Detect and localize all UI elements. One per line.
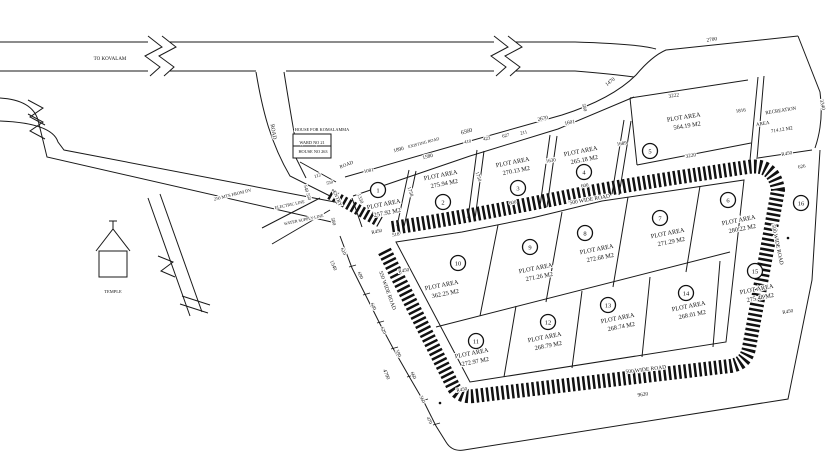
survey-dot: [439, 402, 442, 405]
plot-number: 11: [473, 338, 479, 345]
top-road-lower-edge: [0, 71, 634, 77]
annotation-label: 1540: [328, 260, 338, 272]
annotation-label: 3222: [668, 92, 680, 100]
annotation-label: RECREATION: [765, 107, 797, 117]
temple-finial: [109, 221, 117, 229]
annotation-label: 1689: [617, 141, 628, 148]
plot-area-label: PLOT AREA280.22 M2: [721, 214, 758, 236]
annotation-label: WARD NO 21: [299, 140, 324, 145]
site-plan-svg: TO KOVALAMROADHOUSE FOR KOMALAMMAWARD NO…: [0, 0, 830, 460]
plot-area-label: PLOT AREA362.25 M2: [424, 279, 461, 301]
plot-number: 9: [528, 244, 531, 251]
annotation-label: HOUSE NO 263: [298, 149, 327, 154]
annotation-label: 2670: [537, 115, 549, 123]
plot-area-label: PLOT AREA270.13 M2: [495, 156, 532, 178]
annotation-label: 3340: [818, 99, 826, 111]
plot-number: 15: [752, 268, 759, 275]
annotation-label: 1470: [604, 76, 616, 87]
plot-number: 12: [545, 319, 552, 326]
plot-area-label: PLOT AREA268.74 M2: [600, 312, 637, 334]
plot-number: 2: [441, 199, 444, 206]
plot-number: 13: [605, 302, 612, 309]
plot-area-label: PLOT AREA268.01 M2: [671, 300, 708, 322]
plot-number: 1: [376, 187, 379, 194]
annotation-label: 1081: [363, 168, 374, 175]
plot-number: 3: [516, 185, 519, 192]
plot-area-label: PLOT AREA564.19 M2: [666, 111, 703, 132]
plot-number: 5: [648, 148, 651, 155]
annotation-label: 1580: [422, 153, 434, 161]
annotation-label: R450: [371, 229, 383, 236]
annotation-label: R450: [781, 151, 793, 158]
house-leader-line: [296, 158, 306, 178]
temple-roof: [96, 229, 130, 251]
annotation-label: 1601: [564, 119, 576, 127]
plot-area-label: PLOT AREA275.94 M2: [423, 169, 460, 191]
plot-area-label: PLOT AREA272.68 M2: [579, 243, 616, 265]
annotation-label: EXISTING ROAD: [407, 136, 439, 149]
plot-area-label: PLOT AREA272.97 M2: [454, 347, 491, 369]
annotation-label: R450: [398, 268, 410, 275]
road-break-icon: [28, 100, 45, 139]
annotation-label: 580: [580, 104, 587, 113]
annotation-label: 423: [483, 136, 492, 143]
annotation-label: 4790: [381, 369, 391, 381]
survey-dot: [787, 237, 790, 240]
culvert-icon: [180, 296, 210, 313]
annotation-label: 590: [394, 349, 402, 358]
annotation-label: R450: [782, 309, 794, 316]
annotation-label: 600: [509, 200, 518, 206]
plot-number: 8: [583, 230, 586, 237]
approach-road-inner-edge: [0, 121, 340, 203]
annotation-label: ROAD: [269, 124, 278, 140]
annotation-label: HOUSE FOR KOMALAMMA: [295, 127, 350, 132]
annotation-label: 640: [369, 302, 377, 311]
site-plan-drawing: TO KOVALAMROADHOUSE FOR KOMALAMMAWARD NO…: [0, 0, 830, 460]
plot5-recreation-divider: [750, 76, 764, 160]
annotation-label: ROAD: [339, 160, 354, 170]
plot-area-label: PLOT AREA265.18 M2: [563, 145, 600, 167]
annotation-label: 6560: [460, 128, 473, 137]
annotation-label: 714.12 M2: [771, 126, 794, 134]
plot-number: 10: [455, 260, 462, 267]
plot-area-label: PLOT AREA268.79 M2: [527, 331, 564, 353]
annotation-label: 690: [356, 271, 364, 280]
subdivision-boundaries: [340, 36, 821, 450]
annotation-label: 2700: [706, 36, 718, 43]
annotation-label: ELECTRIC LINE: [274, 199, 305, 210]
annotation-label: 3220: [685, 152, 697, 160]
annotation-label: 627: [502, 133, 511, 140]
plot-area-label: PLOT AREA271.29 M2: [650, 227, 687, 249]
annotation-label: 626: [798, 164, 807, 170]
road-network: [0, 36, 656, 316]
annotation-label: TO KOVALAM: [94, 57, 127, 62]
annotation-label: TEMPLE: [104, 289, 122, 294]
annotation-label: 1890: [393, 146, 405, 155]
branch-road-edges: [148, 194, 202, 316]
annotation-label: 1750: [474, 171, 482, 183]
annotation-label: 9620: [637, 391, 649, 398]
annotation-label: 580: [329, 218, 336, 227]
top-road-upper-edge: [0, 42, 656, 49]
annotation-label: 1816: [736, 108, 747, 115]
annotation-label: 410: [464, 139, 473, 146]
annotation-label: 1630: [546, 158, 557, 165]
northeast-outer-edge: [798, 36, 821, 148]
plot-number: 14: [683, 290, 690, 297]
annotation-label: 470: [425, 416, 433, 425]
annotation-label: WATER SUPPLY LINE: [283, 213, 324, 226]
plot2-3-divider: [468, 150, 484, 219]
annotation-label: 211: [520, 130, 529, 137]
plot-layer: PLOT AREA257.92 M21PLOT AREA275.94 M22PL…: [366, 111, 808, 369]
annotation-label: AREA: [756, 121, 771, 128]
temple-icon: [96, 221, 130, 277]
temple-base: [99, 251, 127, 277]
plot-number: 16: [798, 200, 805, 207]
